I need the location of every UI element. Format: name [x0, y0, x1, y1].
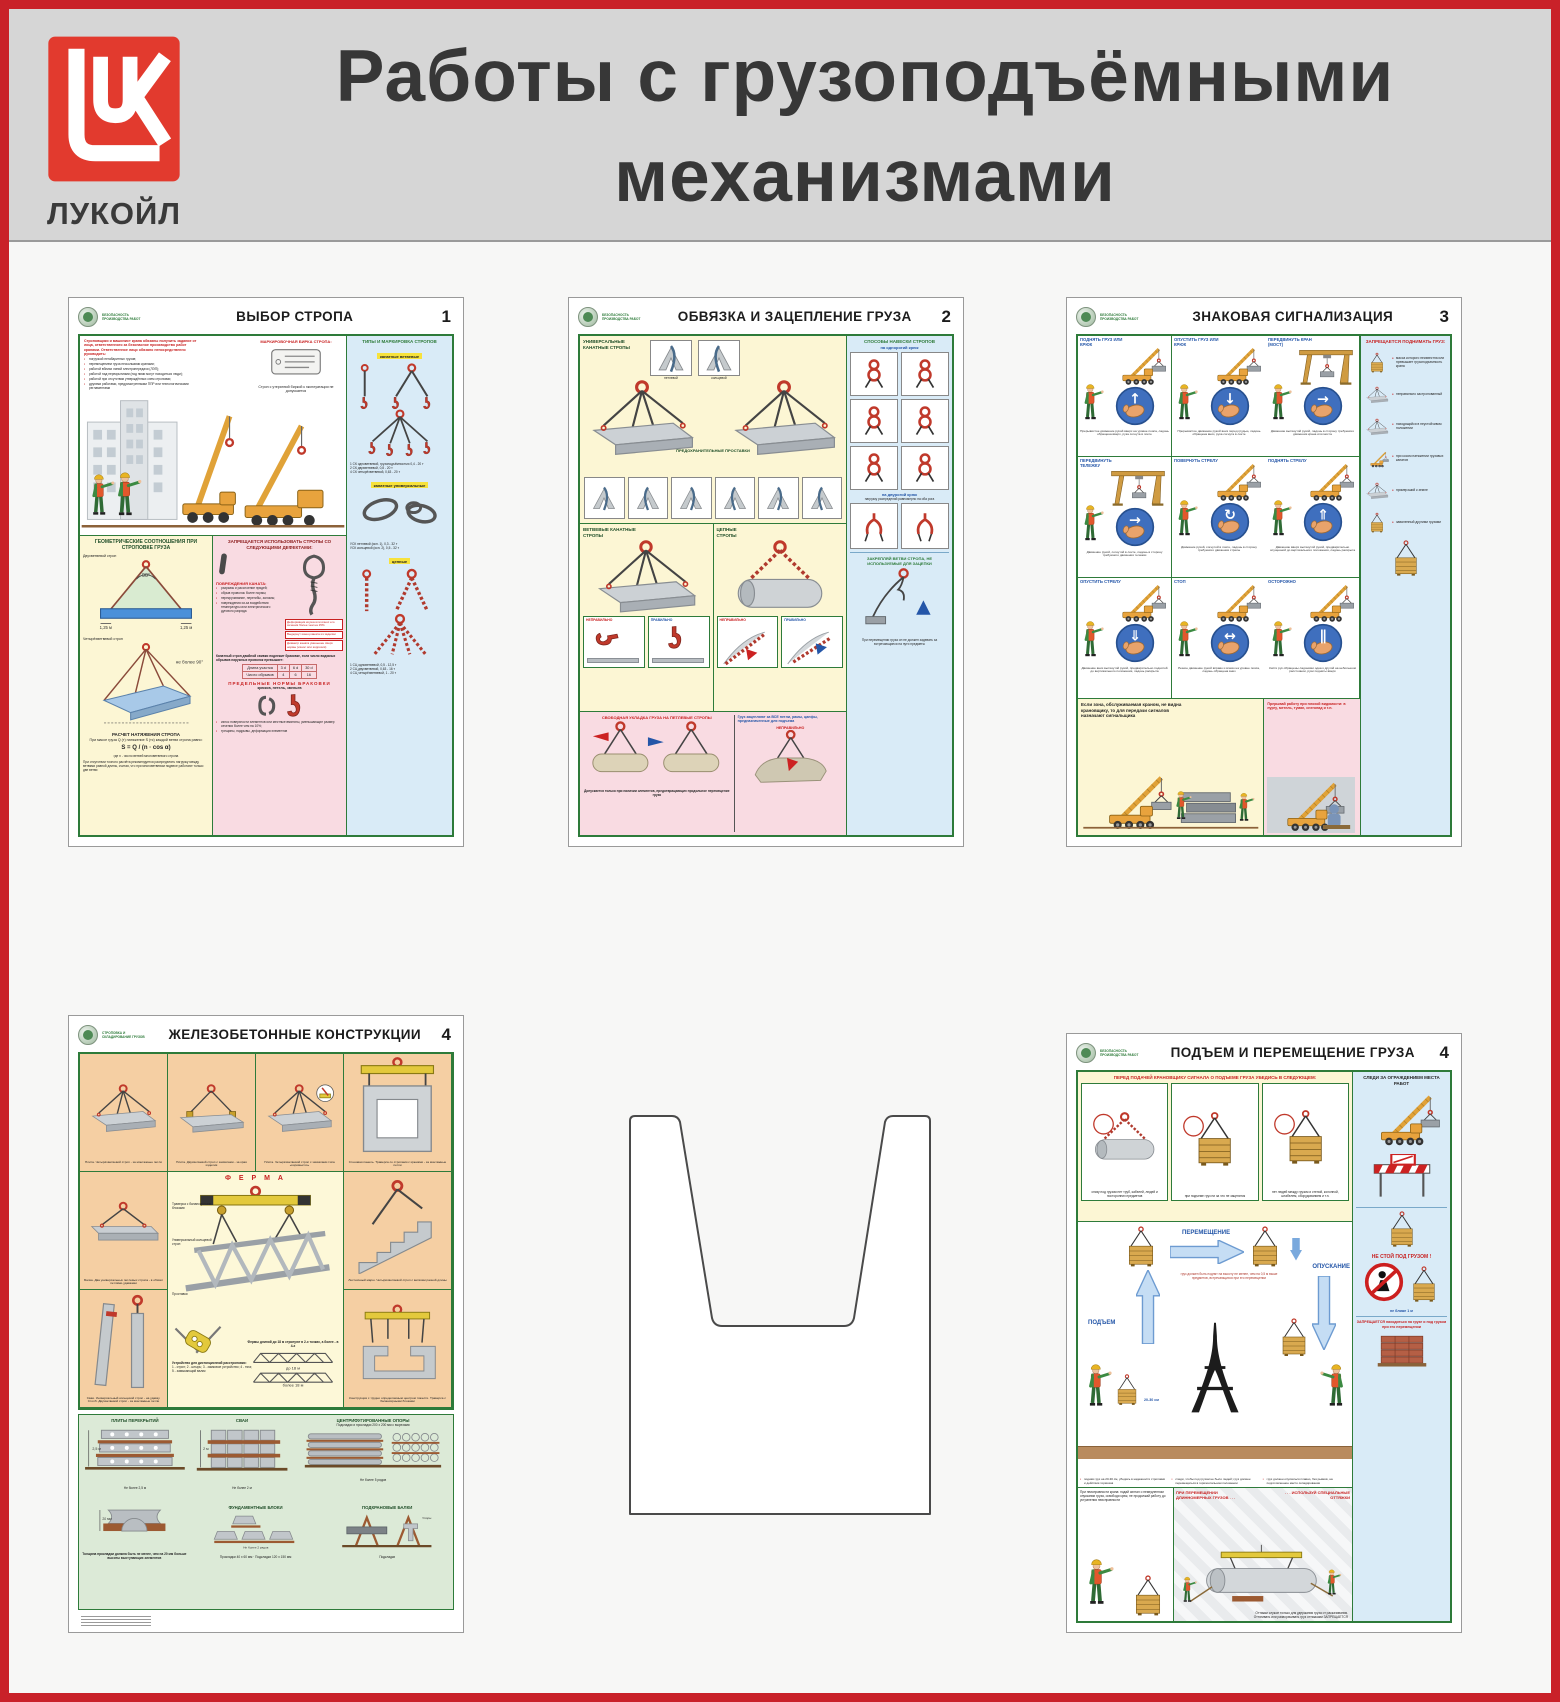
- poster3-number: 3: [1440, 307, 1452, 327]
- hook-wrong-cell: НЕПРАВИЛЬНО: [583, 616, 645, 668]
- poster5-watch-panel: СЛЕДИ ЗА ОГРАЖДЕНИЕМ МЕСТА РАБОТ НЕ СТОЙ…: [1352, 1072, 1450, 1621]
- cell-konstrukcia: Конструкция с трудно определяемым центро…: [344, 1290, 452, 1408]
- hand-signal-icon: ⇓: [1115, 623, 1155, 663]
- watch-title: СЛЕДИ ЗА ОГРАЖДЕНИЕМ МЕСТА РАБОТ: [1356, 1075, 1447, 1086]
- poster3-header: Безопасность производства работ ЗНАКОВАЯ…: [1076, 301, 1452, 332]
- signal-cell: СТОП ↔ Резкое движение рукой вправо и вл…: [1172, 578, 1266, 699]
- spacers-title: ПРЕДОХРАНИТЕЛЬНЫЕ ПРОСТАВКИ: [580, 448, 846, 453]
- frame-traverse-icon: [350, 1292, 445, 1397]
- lukoil-logo: ЛУКОЙЛ: [39, 35, 189, 232]
- poster2-main: УНИВЕРСАЛЬНЫЕ КАНАТНЫЕ СТРОПЫ петлевой к…: [578, 334, 954, 837]
- wear-note: Канатный строп двойной свивки подлежит б…: [216, 654, 343, 662]
- svg-text:до 18 м: до 18 м: [286, 1366, 300, 1371]
- forbidden-list: масса которого неизвестна или превышает …: [1364, 348, 1447, 538]
- ground-strip: [1078, 1446, 1352, 1459]
- visibility-note: Прерывай работу при плохой видимости: в …: [1267, 702, 1357, 711]
- brand-name: ЛУКОЙЛ: [39, 196, 189, 232]
- signalman-icon: [1270, 382, 1292, 430]
- lift-label: ПОДЪЕМ: [1088, 1320, 1115, 1327]
- parked-crane-icon: [1266, 777, 1356, 833]
- svg-text:20 мм: 20 мм: [102, 1517, 112, 1521]
- cell-stenovaya-panel: Стеновая панель. Траверса со стропами с …: [344, 1054, 452, 1172]
- piles-icon: [85, 1292, 161, 1397]
- crate-icon: [1131, 1575, 1165, 1618]
- wear-tr2: 6: [289, 671, 301, 678]
- svg-text:Упоры: Упоры: [423, 1516, 432, 1520]
- types-item: 4 СЦ четырёхветвевой, 1 - 20 т: [350, 671, 449, 675]
- move-arrow-icon: [1170, 1240, 1244, 1264]
- ways-foot-note: При перемещении груза он не должен задев…: [850, 638, 949, 646]
- types-item: 4 СК четырёхветвевой, 0,63 - 20 т: [350, 470, 449, 474]
- slab-universal-sling-icon: [582, 380, 702, 457]
- worker-icon: [1086, 1557, 1114, 1617]
- crane-icon: [1360, 1088, 1444, 1149]
- defects-title: ЗАПРЕЩАЕТСЯ ИСПОЛЬЗОВАТЬ СТРОПЫ СО СЛЕДУ…: [216, 539, 343, 550]
- chain-link-icon: [256, 693, 276, 719]
- ground-notes: подняв груз на 20-30 см, убедись в надеж…: [1080, 1478, 1350, 1485]
- cell-plita-4vetv: Плита. Четырёхветвевой строп - за монтаж…: [80, 1054, 168, 1172]
- poster-badge: Безопасность производства работ: [1100, 1049, 1146, 1057]
- eiffel-tower-icon: [1182, 1320, 1248, 1416]
- intro-item: работой вблизи линий электропередачи (ЛЭ…: [84, 367, 202, 371]
- poster1-tag-block: МАРКИРОВОЧНАЯ БИРКА СТРОПА: Строп с утер…: [250, 339, 342, 394]
- hand-signal-icon: ∥: [1303, 623, 1343, 663]
- svg-text:1,25 м: 1,25 м: [180, 625, 192, 630]
- signal-cell: ПОДНЯТЬ СТРЕЛУ ⇑ Движение вверх вытянуто…: [1266, 457, 1360, 578]
- small-down-arrow-icon: [1290, 1238, 1302, 1261]
- credits-lines: [81, 1616, 151, 1626]
- hand-signal-icon: →: [1303, 386, 1343, 426]
- check-cell: при подъеме груз ни за что не зацепится: [1171, 1083, 1258, 1201]
- poster1-scene-panel: Строповщики и машинист крана обязаны пол…: [80, 336, 346, 536]
- svg-text:не более 90°: не более 90°: [176, 660, 204, 665]
- stand-title-line1: Работы с грузоподъёмными: [249, 27, 1481, 127]
- poster-emblem-icon: [78, 307, 98, 327]
- svg-text:⇓: ⇓: [1129, 628, 1141, 644]
- svg-text:⇑: ⇑: [1317, 507, 1329, 523]
- cell-caption: Стеновая панель. Траверса со стропами с …: [346, 1161, 449, 1169]
- svg-text:↔: ↔: [1224, 628, 1236, 644]
- ferma-title: Ф Е Р М А: [171, 1175, 340, 1183]
- intro-item: работой при отсутствии утверждённых схем…: [84, 377, 202, 381]
- crate-icon: [1409, 1266, 1439, 1304]
- geometry-title: ГЕОМЕТРИЧЕСКИЕ СООТНОШЕНИЯ ПРИ СТРОПОВКЕ…: [83, 539, 209, 552]
- types-group1-list: 1 СК одноветвевой, грузоподъёмностью 0,4…: [350, 462, 449, 474]
- chain-slings-icon: [351, 568, 449, 658]
- spacer-icon: [763, 483, 793, 513]
- signal-caption: Резкое движение рукой вправо и влево на …: [1174, 667, 1264, 674]
- construction-site-icon: [80, 389, 346, 535]
- forbidden-item: заваленный другими грузами: [1364, 508, 1447, 538]
- check-cell: снизу под грузом нет труб, кабелей, люде…: [1081, 1083, 1168, 1201]
- crane-beams-rack-icon: Упоры: [324, 1510, 450, 1550]
- wrong-label: НЕПРАВИЛЬНО: [586, 618, 612, 622]
- wear-table: Длина участка 3 d 6 d 30 d Число обрывов…: [242, 664, 316, 679]
- pink-right-note: Груз зацепляют за ВСЕ петли, рамы, цапфы…: [738, 715, 843, 724]
- check-cell: нет людей между грузом и стеной, колонно…: [1262, 1083, 1349, 1201]
- norms-sub: крюков, петель, звеньев: [216, 686, 343, 690]
- rope-piece-icon: [216, 552, 230, 576]
- svg-text:90°: 90°: [142, 573, 150, 579]
- types-group3-label: цепные: [389, 558, 410, 564]
- signal-caption: Движение вверх вытянутой рукой, предвари…: [1268, 546, 1357, 553]
- cell-caption: Плита. Двухветвевой строп с захватами - …: [170, 1161, 253, 1169]
- wear-th1: 3 d: [277, 664, 289, 671]
- hand-signal-icon: →: [1115, 507, 1155, 547]
- storage-note: Не более 5 рядов: [296, 1478, 450, 1482]
- spacer-thickness-icon: 20 мм: [82, 1505, 187, 1547]
- poster4-main: Плита. Четырёхветвевой строп - за монтаж…: [78, 1052, 454, 1610]
- poster1-geometry-panel: ГЕОМЕТРИЧЕСКИЕ СООТНОШЕНИЯ ПРИ СТРОПОВКЕ…: [80, 536, 213, 835]
- hook-hitch-icon: [914, 452, 936, 482]
- cell-caption: Лестничный марш. Четырёхветвевой строп с…: [348, 1279, 446, 1287]
- svg-text:2 м: 2 м: [203, 1447, 209, 1451]
- rollers-icon: [583, 720, 731, 784]
- right-label: ПРАВИЛЬНО: [651, 618, 673, 622]
- lift-height-note: 20-30 см: [1144, 1398, 1159, 1402]
- double-horn-hook-icon: [913, 510, 937, 542]
- hook-wrong-icon: [593, 629, 621, 651]
- cell-lestnichny-marsh: Лестничный марш. Четырёхветвевой строп с…: [344, 1172, 452, 1290]
- pipe-chain-sling-icon: [722, 540, 838, 614]
- poster5-move-panel: ПЕРЕМЕЩЕНИЕ ОПУСКАНИЕ груз должен быть п…: [1078, 1222, 1352, 1488]
- crate-icon: [1248, 1226, 1282, 1269]
- signalman-icon: [1176, 382, 1198, 430]
- load-icon: [1364, 412, 1390, 442]
- poster1-main: Строповщики и машинист крана обязаны пол…: [78, 334, 454, 837]
- svg-text:→: →: [1129, 512, 1141, 528]
- storage-note: Не более 2 м: [194, 1486, 290, 1490]
- poster2-title: ОБВЯЗКА И ЗАЦЕПЛЕНИЕ ГРУЗА: [652, 309, 938, 324]
- plastic-pocket: [627, 1113, 933, 1517]
- spacer-icon: [807, 483, 837, 513]
- hook-hitch-icon: [914, 358, 936, 388]
- damage-item: разрывы и расслоение прядей;: [216, 586, 282, 590]
- four-leg-sling-diagram-icon: не более 90°: [83, 641, 209, 727]
- poster-emblem-icon: [1076, 1043, 1096, 1063]
- cell-caption: Плита. Четырёхветвевой строп с захватами…: [258, 1161, 341, 1169]
- height-note: груз должен быть поднят на высоту не мен…: [1174, 1272, 1284, 1280]
- svg-text:→: →: [1317, 391, 1329, 407]
- truss-scheme-icon: до 18 м более 18 м: [248, 1348, 338, 1388]
- stand-title-line2: механизмами: [249, 127, 1481, 227]
- poster-obvyazka: Безопасность производства работ ОБВЯЗКА …: [568, 297, 964, 847]
- wear-tr0: Число обрывов: [243, 671, 277, 678]
- slab-yoke-icon: [261, 1056, 337, 1161]
- load-icon: [1364, 380, 1390, 410]
- pink-note: Допускается только при наличии элементов…: [583, 789, 731, 797]
- poster1-defects-panel: ЗАПРЕЩАЕТСЯ ИСПОЛЬЗОВАТЬ СТРОПЫ СО СЛЕДУ…: [213, 536, 346, 835]
- svg-text:↻: ↻: [1224, 507, 1236, 523]
- crate-small-icon: [1114, 1374, 1140, 1407]
- check-illustration-icon: [1084, 1086, 1165, 1190]
- header: ЛУКОЙЛ Работы с грузоподъёмными механизм…: [9, 9, 1551, 242]
- unused-branch-icon: [864, 568, 936, 631]
- barrier-sign-icon: [1370, 1154, 1434, 1199]
- wear-th0: Длина участка: [243, 664, 277, 671]
- poster-emblem-icon: [78, 1025, 98, 1045]
- hook-right-cell: ПРАВИЛЬНО: [648, 616, 710, 668]
- check-illustration-icon: [1265, 1086, 1346, 1190]
- chain-wrong-cell: НЕПРАВИЛЬНО: [717, 616, 779, 668]
- check-cells: снизу под грузом нет труб, кабелей, люде…: [1081, 1083, 1349, 1201]
- poster-badge: Безопасность производства работ: [102, 313, 148, 321]
- hand-signal-icon: ↓: [1210, 386, 1250, 426]
- fix-note: ЗАКРЕПЛЯЙ ВЕТВИ СТРОПА, НЕ ИСПОЛЬЗУЕМЫЕ …: [850, 556, 949, 566]
- poster2-number: 2: [942, 307, 954, 327]
- types-group3-list: 1 СЦ одноветвевой, 0,5 - 12,5 т2 СЦ двух…: [350, 663, 449, 675]
- near-note: не ближе 1 м: [1356, 1309, 1447, 1313]
- check-caption: при подъеме груз ни за что не зацепится: [1174, 1194, 1255, 1198]
- signalman-icon: [1176, 619, 1198, 667]
- forbidden-text: масса которого неизвестна или превышает …: [1392, 357, 1447, 368]
- chain-right-cell: ПРАВИЛЬНО: [781, 616, 843, 668]
- poster3-main: ПОДНЯТЬ ГРУЗ ИЛИ КРЮК ↑ Прерывистое движ…: [1076, 334, 1452, 837]
- poster-signaly: Безопасность производства работ ЗНАКОВАЯ…: [1066, 297, 1462, 847]
- chain-corner-wrong-icon: [720, 621, 776, 670]
- poster3-visibility-panel: Прерывай работу при плохой видимости: в …: [1264, 699, 1360, 835]
- universal-slings-icon: [351, 492, 449, 537]
- poster5-check-panel: ПЕРЕД ПОДАЧЕЙ КРАНОВЩИКУ СИГНАЛА О ПОДЪЕ…: [1078, 1072, 1352, 1222]
- check-illustration-icon: [1174, 1086, 1255, 1194]
- defect-callout: Выдернут конец каната из заделки: [285, 631, 343, 638]
- wear-tr3: 16: [302, 671, 316, 678]
- signal-caption: Движение рукой, согнутой в локте, ладонь…: [1174, 546, 1264, 553]
- forbidden-item: при косом натяжении грузовых канатов: [1364, 444, 1447, 474]
- signal-caption: Движение рукой, согнутой в локте, ладонь…: [1080, 551, 1169, 558]
- crate-icon: [1278, 1318, 1310, 1358]
- signal-caption: Прерывистое движение рукой вверх на уров…: [1080, 430, 1169, 437]
- spacer-icon: [720, 483, 750, 513]
- forbidden-text: находящийся в неустойчивом положении: [1392, 423, 1447, 431]
- tag-title: МАРКИРОВОЧНАЯ БИРКА СТРОПА:: [250, 339, 342, 344]
- types-title: ТИПЫ И МАРКИРОВКА СТРОПОВ: [350, 339, 449, 345]
- worker-icon: [1086, 1362, 1112, 1418]
- no-entry-icon: [1364, 1262, 1404, 1302]
- svg-text:Не более 2 рядов: Не более 2 рядов: [243, 1545, 269, 1549]
- crane-icon: [1202, 458, 1264, 504]
- norms-item: износ поверхности элементов или местные …: [216, 720, 343, 728]
- cell-plita-koromyslo: Плита. Четырёхветвевой строп с захватами…: [256, 1054, 344, 1172]
- poster-badge: Строповка и складирование грузов: [102, 1031, 148, 1039]
- poster1-header: Безопасность производства работ ВЫБОР СТ…: [78, 301, 454, 332]
- signalman-note: Если зона, обслуживаемая краном, не видн…: [1081, 702, 1192, 719]
- poster5-number: 4: [1440, 1043, 1452, 1063]
- poster1-intro: Строповщики и машинист крана обязаны пол…: [84, 339, 202, 391]
- poster5-long-load-panel: ПРИ ПЕРЕМЕЩЕНИИ ДЛИННОМЕРНЫХ ГРУЗОВ . . …: [1174, 1488, 1352, 1621]
- up-arrow-icon: [1136, 1270, 1160, 1344]
- damage-item: обрыв проволок более нормы;: [216, 591, 282, 595]
- damage-item: повреждения из-за воздействия температур…: [216, 601, 282, 613]
- poster-vybor-stropa: Безопасность производства работ ВЫБОР СТ…: [68, 297, 464, 847]
- poster-emblem-icon: [1076, 307, 1096, 327]
- poster5-fault-panel: При неисправности крана: подай сигнал о …: [1078, 1488, 1174, 1621]
- svg-text:↓: ↓: [1224, 391, 1236, 407]
- check-caption: снизу под грузом нет труб, кабелей, люде…: [1084, 1190, 1165, 1198]
- crane-icon: [1202, 342, 1264, 388]
- svg-text:более 18 м: более 18 м: [283, 1383, 304, 1388]
- hook-load-icon: [1391, 540, 1421, 578]
- pad-note-2: Подкладки 120 х 150 мм: [255, 1555, 291, 1559]
- storage-note: Не более 2,5 м: [82, 1486, 188, 1490]
- yard-scene-icon: [1080, 763, 1262, 833]
- defect-callout: Деформация коуша или износ его сечения б…: [285, 619, 343, 630]
- hook-hitch-icon: [914, 405, 936, 435]
- svg-text:1,25 м: 1,25 м: [100, 625, 112, 630]
- damage-item: перекручивание, перегибы, заломы;: [216, 596, 282, 600]
- signal-cell: ОПУСТИТЬ ГРУЗ ИЛИ КРЮК ↓ Прерывистое дви…: [1172, 336, 1266, 457]
- poster5-title: ПОДЪЕМ И ПЕРЕМЕЩЕНИЕ ГРУЗА: [1150, 1045, 1436, 1060]
- calc-note: При массе груза Q (т) натяжение S (тс) к…: [83, 738, 209, 742]
- defect-callout: Диаметр каната уменьшен сверх нормы (изн…: [285, 640, 343, 651]
- svg-text:↑: ↑: [1129, 391, 1141, 407]
- chain-corner-right-icon: [784, 621, 840, 670]
- poster2-header: Безопасность производства работ ОБВЯЗКА …: [578, 301, 954, 332]
- ferma-note3: Проставки: [172, 1292, 208, 1296]
- cell-caption: Балка. Два универсальных петлевых стропа…: [82, 1279, 165, 1287]
- slab-grab-icon: [173, 1056, 249, 1161]
- wear-th2: 6 d: [289, 664, 301, 671]
- types-group2-list: УСК петлевой (исп. 1), 0,3 - 32 тУСК кол…: [350, 542, 449, 550]
- bricks-icon: [1376, 1331, 1428, 1369]
- poster-zhb-konstrukcii: Строповка и складирование грузов ЖЕЛЕЗОБ…: [68, 1015, 464, 1633]
- no-stand-label: НЕ СТОЙ ПОД ГРУЗОМ !: [1356, 1254, 1447, 1260]
- norms-item: трещины, надрывы, деформация элементов: [216, 729, 343, 733]
- ways-sub1: на однорогий крюк: [850, 345, 949, 350]
- forbidden-item: масса которого неизвестна или превышает …: [1364, 348, 1447, 378]
- svg-text:2,5 м: 2,5 м: [92, 1447, 101, 1451]
- signal-caption: Движение вниз вытянутой рукой, предварит…: [1080, 667, 1169, 674]
- signalman-icon: [1270, 498, 1292, 546]
- long-note: Оттяжки служат только для удержания груз…: [1248, 1611, 1348, 1619]
- signal-cell: ПЕРЕДВИНУТЬ ТЕЛЕЖКУ → Движение рукой, со…: [1078, 457, 1172, 578]
- device-list: 1 - строп; 2 - штырь; 3 - замковое устро…: [172, 1365, 252, 1373]
- load-icon: [1364, 476, 1390, 506]
- long-title-1: ПРИ ПЕРЕМЕЩЕНИИ ДЛИННОМЕРНЫХ ГРУЗОВ . . …: [1176, 1490, 1253, 1500]
- lukoil-mark-icon: [47, 35, 181, 183]
- rope-slings-icon: [351, 363, 449, 457]
- cell-ferma: Ф Е Р М А Траверса с балансирными блокам…: [168, 1172, 344, 1408]
- poster3-forbidden-panel: ЗАПРЕЩАЕТСЯ ПОДНИМАТЬ ГРУЗ: масса которо…: [1360, 336, 1450, 835]
- ferma-note2: Универсальный кольцевой строп: [172, 1238, 212, 1246]
- crane-icon: [1202, 579, 1264, 625]
- poster3-title: ЗНАКОВАЯ СИГНАЛИЗАЦИЯ: [1150, 309, 1436, 324]
- poster4-number: 4: [442, 1025, 454, 1045]
- types-item: УСК кольцевой (исп. 2), 0,5 - 32 т: [350, 546, 449, 550]
- slab-stack-icon: 2,5 м: [82, 1423, 188, 1481]
- intro-item: погрузкой негабаритных грузов;: [84, 357, 202, 361]
- defect-callouts: Деформация коуша или износ его сечения б…: [285, 619, 343, 651]
- signal-cell: ОПУСТИТЬ СТРЕЛУ ⇓ Движение вниз вытянуто…: [1078, 578, 1172, 699]
- intro-item: работой над перекрытиями (под ними могут…: [84, 372, 202, 376]
- wear-th3: 30 d: [302, 664, 316, 671]
- svg-text:∥: ∥: [1319, 628, 1326, 644]
- signal-caption: Кисти рук обращены ладонями одна к друго…: [1268, 667, 1357, 674]
- crane-icon: [1107, 342, 1169, 388]
- crane-icon: [1295, 458, 1357, 504]
- spacer-icon: [676, 483, 706, 513]
- poles-stack-icon: [296, 1427, 450, 1473]
- crate-icon: [1124, 1226, 1158, 1269]
- damaged-sling-icon: [297, 552, 331, 617]
- signal-caption: Прерывистое движение рукой вниз перед гр…: [1174, 430, 1264, 437]
- pipe-guy-lines-icon: [1176, 1543, 1347, 1607]
- hook-wear-icon: [286, 693, 304, 719]
- ferma-note: Фермы длиной до 18 м стропуют в 2-х точк…: [247, 1340, 339, 1348]
- down-arrow-icon: [1312, 1276, 1336, 1350]
- release-device-icon: [172, 1325, 224, 1356]
- long-title-2: . . . ИСПОЛЬЗУЙ СПЕЦИАЛЬНЫЕ ОТТЯЖКИ: [1273, 1490, 1350, 1500]
- signal-caption: Движение вытянутой рукой, ладонь в сторо…: [1268, 430, 1357, 437]
- crate-icon: [1387, 1211, 1417, 1249]
- ways-note: нагрузку распределяй равномерно на оба р…: [850, 497, 949, 501]
- poster-badge: Безопасность производства работ: [602, 313, 648, 321]
- forbidden-item: примерзший к земле: [1364, 476, 1447, 506]
- double-horn-hook-icon: [862, 510, 886, 542]
- damage-list: разрывы и расслоение прядей;обрыв провол…: [216, 586, 282, 613]
- poster2-pink-panel: СВОБОДНАЯ УКЛАДКА ГРУЗА НА ПЕТЛЕВЫЕ СТРО…: [580, 712, 846, 835]
- signalman-icon: [1082, 382, 1104, 430]
- signal-grid: ПОДНЯТЬ ГРУЗ ИЛИ КРЮК ↑ Прерывистое движ…: [1078, 336, 1360, 699]
- move-label: ПЕРЕМЕЩЕНИЕ: [1182, 1230, 1230, 1237]
- beam-sling-icon: [85, 1174, 161, 1279]
- intro-text: Строповщики и машинист крана обязаны пол…: [84, 339, 202, 357]
- poster1-title: ВЫБОР СТРОПА: [152, 309, 438, 324]
- spacer-icon: [633, 483, 663, 513]
- stand-title: Работы с грузоподъёмными механизмами: [249, 27, 1481, 227]
- forbidden-item: находящийся в неустойчивом положении: [1364, 412, 1447, 442]
- forbidden-title: ЗАПРЕЩАЕТСЯ ПОДНИМАТЬ ГРУЗ:: [1364, 339, 1447, 345]
- slab-strap-sling-icon: [724, 380, 844, 457]
- hand-signal-icon: ↻: [1210, 502, 1250, 542]
- thickness-note: Толщина прокладки должна быть не менее, …: [82, 1552, 187, 1560]
- load-icon: [1364, 508, 1390, 538]
- poster5-main: ПЕРЕД ПОДАЧЕЙ КРАНОВЩИКУ СИГНАЛА О ПОДЪЕ…: [1076, 1070, 1452, 1623]
- ground-note-1: подняв груз на 20-30 см, убедись в надеж…: [1080, 1478, 1167, 1485]
- crane-icon: [1107, 579, 1169, 625]
- poster2-ways-panel: СПОСОБЫ НАВЕСКИ СТРОПОВ на однорогий крю…: [846, 336, 952, 835]
- poster-podyem-peremeshchenie: Безопасность производства работ ПОДЪЕМ И…: [1066, 1033, 1462, 1633]
- poster2-universal-panel: УНИВЕРСАЛЬНЫЕ КАНАТНЫЕ СТРОПЫ петлевой к…: [580, 336, 846, 524]
- spacer-icon: [589, 483, 619, 513]
- slab-branch-sling-icon: [588, 540, 704, 614]
- sling-tag-icon: [268, 346, 324, 378]
- fault-note: При неисправности крана: подай сигнал о …: [1080, 1490, 1171, 1502]
- ways-title: СПОСОБЫ НАВЕСКИ СТРОПОВ: [850, 339, 949, 345]
- hand-signal-icon: ↑: [1115, 386, 1155, 426]
- poster2-branch-panel: ВЕТВЕВЫЕ КАНАТНЫЕ СТРОПЫ НЕПРАВИЛЬНО ПРА…: [580, 524, 714, 711]
- forbidden-text: заваленный другими грузами: [1392, 521, 1441, 525]
- calc-foot: При отсутствии точного расчёта рекоменду…: [83, 760, 209, 772]
- forbidden-text: примерзший к земле: [1392, 489, 1428, 493]
- signal-cell: ПЕРЕДВИНУТЬ КРАН (МОСТ) → Движение вытян…: [1266, 336, 1360, 457]
- safety-stand: ЛУКОЙЛ Работы с грузоподъёмными механизм…: [0, 0, 1560, 1702]
- foundation-blocks-icon: Не более 2 рядов: [193, 1510, 319, 1550]
- poster1-number: 1: [442, 307, 454, 327]
- ferma-note1: Траверса с балансирными блоками: [172, 1202, 216, 1210]
- worker-icon: [1320, 1362, 1346, 1418]
- signal-cell: ПОДНЯТЬ ГРУЗ ИЛИ КРЮК ↑ Прерывистое движ…: [1078, 336, 1172, 457]
- forbidden-text: неправильно застропованный: [1392, 393, 1442, 397]
- forbidden-item: неправильно застропованный: [1364, 380, 1447, 410]
- pad-note-3: Подкладки: [324, 1555, 450, 1559]
- load-icon: [1364, 444, 1390, 474]
- ground-note-3: груз должен опускаться плавно, без рывко…: [1263, 1478, 1350, 1485]
- signal-cell: ОСТОРОЖНО ∥ Кисти рук обращены ладонями …: [1266, 578, 1360, 699]
- poster4-grid: Плита. Четырёхветвевой строп - за монтаж…: [78, 1052, 454, 1410]
- ring-knot-icon: [702, 341, 736, 375]
- hook-hitch-icon: [863, 405, 885, 435]
